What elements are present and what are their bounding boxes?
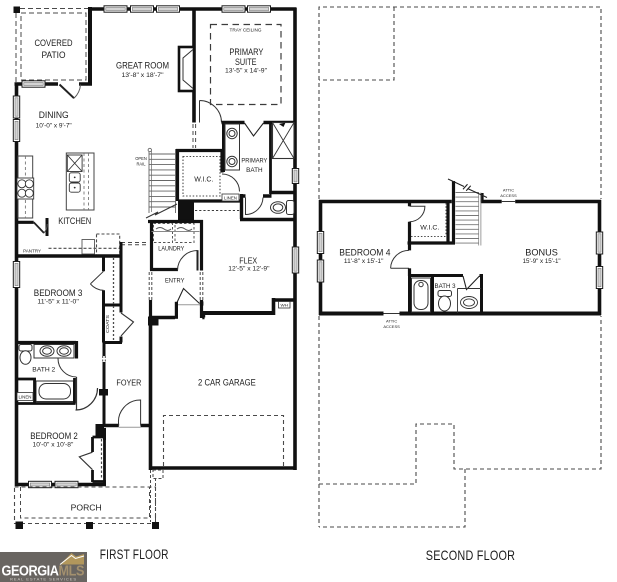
svg-text:ATTIC: ATTIC: [503, 188, 514, 193]
svg-text:BEDROOM 2: BEDROOM 2: [30, 431, 78, 441]
svg-text:LAUNDRY: LAUNDRY: [158, 245, 184, 252]
svg-text:PRIMARY: PRIMARY: [241, 157, 268, 164]
svg-text:13'-5" x 14'-9": 13'-5" x 14'-9": [225, 68, 267, 75]
svg-text:RAIL: RAIL: [136, 162, 146, 167]
svg-text:ACCESS: ACCESS: [383, 324, 400, 329]
svg-text:TRAY CEILING: TRAY CEILING: [230, 28, 262, 33]
svg-text:PORCH: PORCH: [71, 504, 102, 513]
svg-text:10'-0" x 9'-7": 10'-0" x 9'-7": [36, 123, 72, 130]
svg-text:BATH 2: BATH 2: [32, 366, 55, 373]
svg-text:REAL ESTATE SERVICES: REAL ESTATE SERVICES: [10, 578, 77, 582]
svg-text:DINING: DINING: [39, 110, 69, 120]
svg-text:FIRST FLOOR: FIRST FLOOR: [100, 546, 169, 562]
svg-text:GREAT ROOM: GREAT ROOM: [116, 61, 169, 71]
svg-text:KITCHEN: KITCHEN: [58, 216, 91, 226]
svg-text:SUITE: SUITE: [235, 57, 257, 67]
svg-text:PANTRY: PANTRY: [23, 249, 41, 254]
svg-text:BATH 3: BATH 3: [435, 284, 457, 290]
svg-text:W.I.C.: W.I.C.: [194, 177, 213, 184]
svg-text:ATTIC: ATTIC: [386, 319, 397, 324]
svg-text:13'-8" x 18'-7": 13'-8" x 18'-7": [122, 72, 164, 79]
svg-text:FOYER: FOYER: [116, 378, 141, 388]
svg-text:11'-8" x 15'-1": 11'-8" x 15'-1": [344, 258, 384, 265]
svg-text:BEDROOM 3: BEDROOM 3: [34, 288, 83, 298]
svg-text:PATIO: PATIO: [42, 50, 66, 60]
svg-text:15'-9" x 15'-1": 15'-9" x 15'-1": [523, 258, 561, 265]
svg-text:WH: WH: [281, 303, 289, 308]
svg-text:BONUS: BONUS: [525, 247, 558, 257]
svg-text:ACCESS: ACCESS: [500, 193, 517, 198]
svg-text:10'-0" x 10'-8": 10'-0" x 10'-8": [33, 441, 74, 448]
svg-text:W.I.C.: W.I.C.: [420, 224, 439, 231]
svg-text:OPEN: OPEN: [135, 156, 147, 161]
svg-text:SECOND FLOOR: SECOND FLOOR: [426, 547, 516, 563]
svg-text:COATS: COATS: [105, 315, 110, 333]
svg-text:LINEN: LINEN: [224, 195, 237, 200]
svg-text:12'-5" x 12'-9": 12'-5" x 12'-9": [228, 266, 269, 273]
svg-text:BATH: BATH: [246, 167, 263, 174]
svg-text:BEDROOM 4: BEDROOM 4: [339, 247, 390, 257]
svg-text:2 CAR GARAGE: 2 CAR GARAGE: [198, 378, 256, 388]
svg-text:LINEN: LINEN: [19, 395, 32, 400]
svg-text:FLEX: FLEX: [239, 255, 257, 265]
svg-text:COVERED: COVERED: [35, 38, 73, 48]
svg-text:11'-5" x 11'-0": 11'-5" x 11'-0": [37, 299, 78, 306]
svg-text:PRIMARY: PRIMARY: [229, 47, 263, 57]
svg-text:ENTRY: ENTRY: [165, 278, 185, 285]
